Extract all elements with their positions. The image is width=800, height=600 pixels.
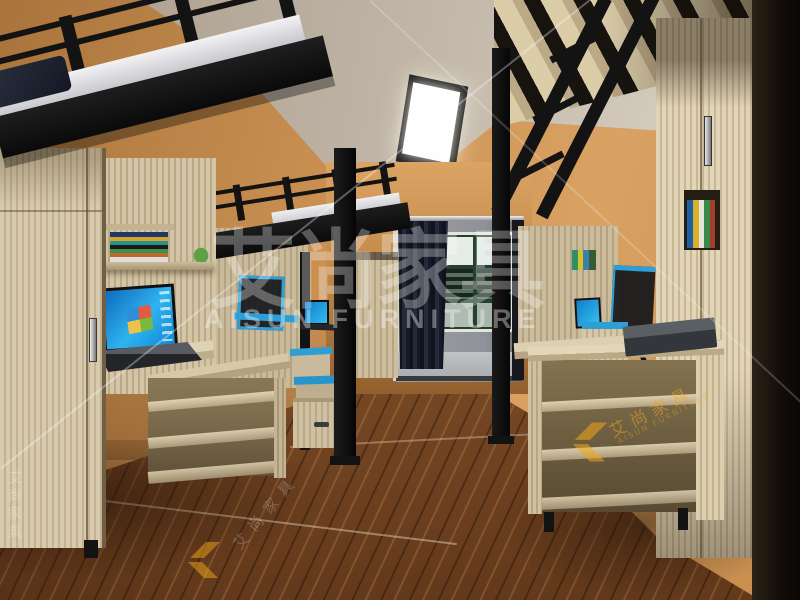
wardrobe-handle (704, 116, 712, 166)
ceiling-light-panel (402, 82, 460, 163)
monitor-stand (237, 275, 285, 331)
shelf-leg (678, 508, 688, 530)
laptop-1-screen (100, 283, 178, 352)
hutch-shelf-board (104, 262, 214, 270)
book-stack (110, 232, 168, 262)
shelf-side-panel (528, 350, 542, 514)
ceiling-light (396, 74, 469, 173)
wardrobe-handle (89, 318, 97, 362)
drawer-handle (314, 422, 329, 427)
books-right-small (572, 250, 596, 270)
window-pane (441, 303, 473, 327)
wardrobe-door-seam (86, 148, 88, 548)
windows-logo-icon (126, 304, 154, 334)
dorm-room-render: 艾尚家具 AISUN FURNITURE 艾尚家具 艾尚家具 艾尚家具 AISU… (0, 0, 800, 600)
mirror-panel (610, 265, 655, 329)
shelf-leg (544, 512, 554, 532)
bed-post-left-front (334, 148, 356, 460)
laptop-2-base (300, 323, 336, 330)
shelf-side-panel (696, 340, 724, 520)
wardrobe-edge (102, 148, 106, 548)
shelf-side-panel (274, 378, 286, 478)
desktop-icons (159, 291, 172, 342)
left-wardrobe (0, 148, 106, 548)
book-spines (687, 200, 715, 248)
mid-cabinet (352, 252, 398, 378)
bed-post-right-front (492, 48, 510, 440)
front-shelf-unit (528, 336, 724, 536)
laptop-1 (98, 286, 202, 372)
shelf-interior (540, 360, 698, 512)
loft-bed-1 (0, 0, 328, 170)
wardrobe-top-seam (0, 210, 106, 212)
under-desk-shelves (148, 378, 286, 480)
bed-post-foot (330, 456, 360, 465)
right-dark-panel (752, 0, 800, 600)
wardrobe-foot (84, 540, 98, 558)
laptop-2-screen (303, 300, 329, 325)
hutch-shelf-board (104, 224, 174, 230)
plant (192, 246, 210, 262)
curtain (398, 221, 448, 369)
bookshelf-niche (684, 190, 720, 250)
step-riser (292, 352, 330, 378)
bed-post-foot (488, 436, 514, 444)
